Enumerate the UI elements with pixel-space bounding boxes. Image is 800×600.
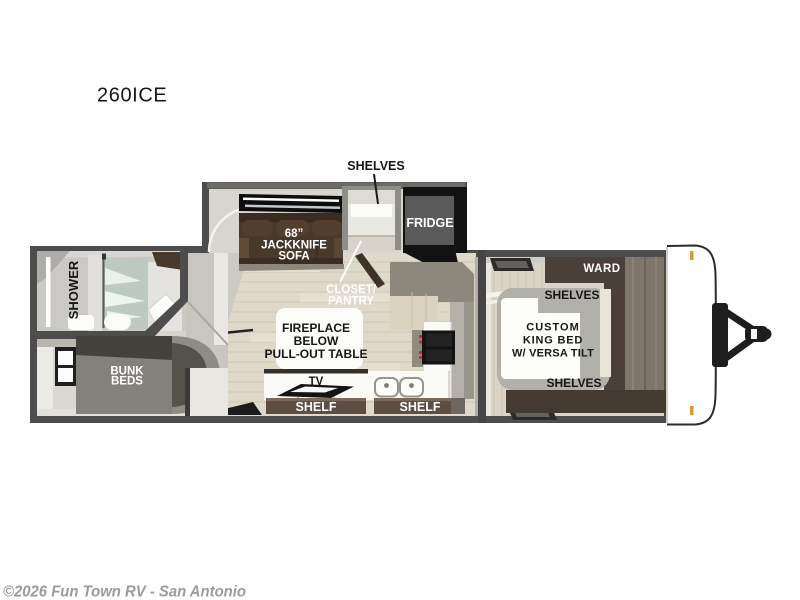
svg-text:BEDS: BEDS	[111, 376, 143, 388]
svg-text:68”: 68”	[285, 228, 304, 240]
svg-text:FIREPLACE: FIREPLACE	[282, 321, 350, 335]
svg-text:CLOSET/: CLOSET/	[326, 284, 377, 296]
svg-text:SHELF: SHELF	[400, 400, 441, 414]
svg-text:SHELVES: SHELVES	[546, 376, 601, 390]
svg-text:PULL-OUT TABLE: PULL-OUT TABLE	[264, 347, 367, 361]
svg-text:SHOWER: SHOWER	[66, 260, 81, 319]
svg-text:W/ VERSA TILT: W/ VERSA TILT	[512, 348, 594, 360]
svg-text:WARD: WARD	[583, 263, 620, 275]
svg-text:SHELVES: SHELVES	[347, 159, 404, 173]
svg-text:SHELVES: SHELVES	[544, 288, 599, 302]
svg-text:©2026 Fun Town RV - San Antoni: ©2026 Fun Town RV - San Antonio	[3, 584, 246, 600]
svg-text:CUSTOM: CUSTOM	[526, 322, 579, 334]
svg-text:FRIDGE: FRIDGE	[406, 216, 453, 230]
svg-text:PANTRY: PANTRY	[328, 296, 374, 308]
svg-text:KING BED: KING BED	[523, 335, 583, 347]
svg-text:260ICE: 260ICE	[97, 85, 167, 107]
svg-text:BELOW: BELOW	[294, 334, 339, 348]
svg-text:TV: TV	[309, 376, 324, 388]
svg-text:SOFA: SOFA	[278, 251, 309, 263]
svg-text:SHELF: SHELF	[296, 400, 337, 414]
